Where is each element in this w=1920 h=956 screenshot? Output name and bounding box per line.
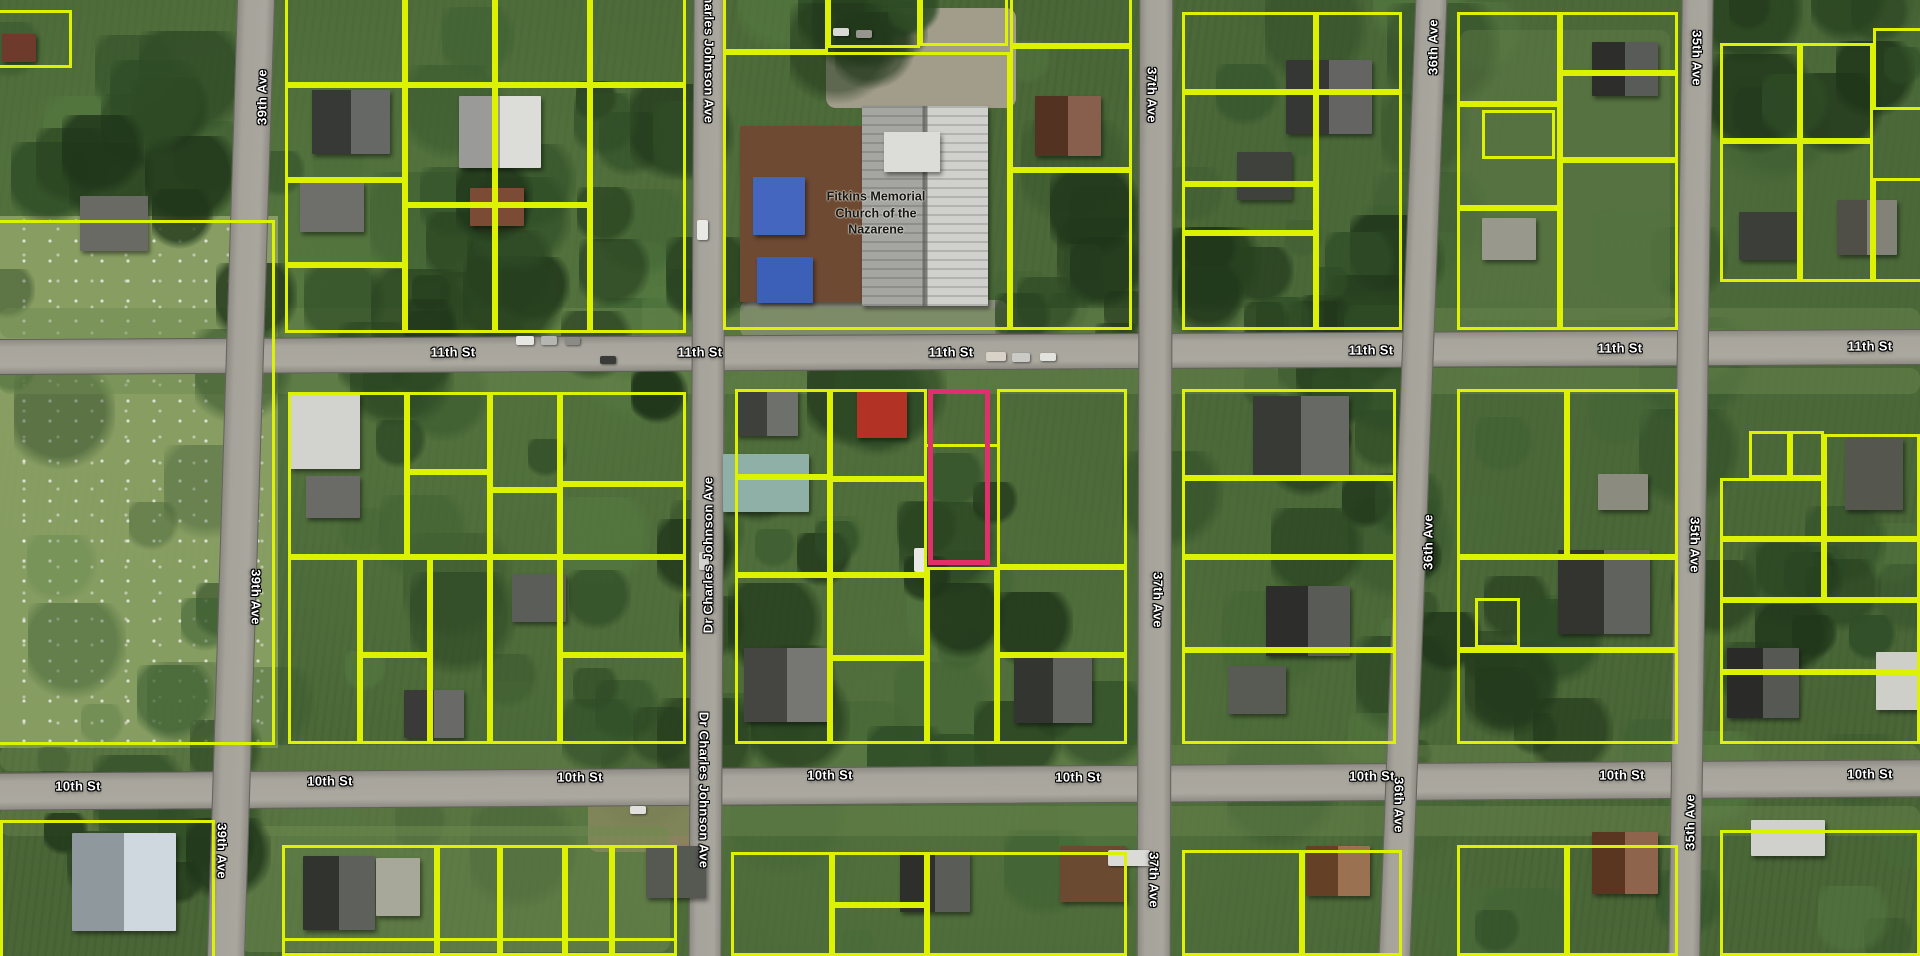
place-label-line: Nazarene <box>827 221 926 238</box>
street-label: 11th St <box>1349 342 1394 357</box>
parcel-outline[interactable] <box>0 220 275 745</box>
parcel-outline[interactable] <box>560 655 686 744</box>
parcel-outline[interactable] <box>1560 12 1678 73</box>
selected-parcel-outline[interactable] <box>928 389 990 565</box>
street-label: 37th Ave <box>1151 572 1166 628</box>
parcel-outline[interactable] <box>1720 539 1824 600</box>
parcel-outline[interactable] <box>360 655 430 744</box>
street-label: 37th Ave <box>1147 852 1162 908</box>
parcel-boundary-segment[interactable] <box>282 938 677 941</box>
parcel-outline[interactable] <box>1182 233 1316 330</box>
street-label: 10th St <box>307 773 353 788</box>
parcel-outline[interactable] <box>1457 650 1678 744</box>
street-label: 36th Ave <box>1392 777 1407 833</box>
parcel-outline[interactable] <box>830 658 927 744</box>
parcel-outline[interactable] <box>1010 46 1132 170</box>
vegetation-patch <box>36 128 114 206</box>
vegetation-patch <box>62 115 144 197</box>
parcel-outline[interactable] <box>405 85 495 205</box>
street-label: 10th St <box>807 767 853 782</box>
parcel-outline[interactable] <box>1720 141 1800 282</box>
parcel-outline[interactable] <box>832 905 927 956</box>
parcel-outline[interactable] <box>1720 43 1800 141</box>
parcel-outline[interactable] <box>560 392 686 484</box>
street-label: 11th St <box>431 344 476 359</box>
parcel-outline[interactable] <box>495 0 590 85</box>
parcel-outline[interactable] <box>997 655 1127 744</box>
parcel-outline[interactable] <box>405 205 495 333</box>
parcel-outline[interactable] <box>490 490 560 557</box>
parcel-outline[interactable] <box>1560 160 1678 330</box>
parcel-outline[interactable] <box>1182 650 1396 744</box>
street-label: Dr Charles Johnson Ave <box>701 477 716 634</box>
vehicle <box>630 806 646 814</box>
street-label: 11th St <box>929 344 974 359</box>
parcel-outline[interactable] <box>560 557 686 655</box>
vegetation-patch <box>75 117 131 173</box>
map-canvas[interactable]: Fitkins Memorial Church of the Nazarene … <box>0 0 1920 956</box>
parcel-outline[interactable] <box>0 10 72 68</box>
street-label: 35th Ave <box>1688 517 1703 573</box>
street-label: 37th Ave <box>1145 67 1160 123</box>
street-label: 36th Ave <box>1426 19 1441 75</box>
parcel-outline[interactable] <box>828 0 920 48</box>
parcel-outline[interactable] <box>490 557 560 744</box>
parcel-outline[interactable] <box>927 567 997 744</box>
parcel-outline[interactable] <box>920 0 1008 46</box>
parcel-outline[interactable] <box>1457 208 1560 330</box>
parcel-outline[interactable] <box>285 85 405 180</box>
vegetation-patch <box>95 35 177 117</box>
parcel-outline[interactable] <box>1567 389 1678 557</box>
parcel-outline[interactable] <box>490 392 560 490</box>
street-label: 10th St <box>55 778 101 793</box>
parcel-outline[interactable] <box>1824 434 1920 539</box>
vehicle <box>1040 353 1056 361</box>
vehicle <box>697 220 708 240</box>
parcel-outline[interactable] <box>1182 478 1396 557</box>
parcel-outline[interactable] <box>1182 92 1316 184</box>
parcel-outline[interactable] <box>285 0 405 85</box>
parcel-outline[interactable] <box>1567 845 1678 956</box>
road-37th-ave[interactable] <box>1137 0 1174 956</box>
parcel-outline[interactable] <box>288 392 407 557</box>
vegetation-patch <box>1729 0 1772 32</box>
parcel-outline[interactable] <box>285 180 405 265</box>
parcel-outline[interactable] <box>407 392 490 472</box>
place-label-line: Church of the <box>827 205 926 222</box>
parcel-outline[interactable] <box>1475 598 1520 648</box>
parcel-outline[interactable] <box>495 205 590 333</box>
vehicle <box>516 336 534 345</box>
vegetation-patch <box>131 77 209 155</box>
parcel-outline[interactable] <box>590 85 686 333</box>
parcel-outline[interactable] <box>1316 12 1402 92</box>
place-label-church: Fitkins Memorial Church of the Nazarene <box>827 188 926 238</box>
parcel-outline[interactable] <box>1010 0 1132 46</box>
street-label: 35th Ave <box>1683 794 1698 850</box>
parcel-outline[interactable] <box>731 852 832 956</box>
street-label: 11th St <box>1598 340 1643 355</box>
vegetation-patch <box>150 120 189 159</box>
parcel-outline[interactable] <box>495 85 590 205</box>
parcel-outline[interactable] <box>1182 557 1396 650</box>
parcel-outline[interactable] <box>288 557 360 744</box>
parcel-outline[interactable] <box>1560 73 1678 160</box>
parcel-outline[interactable] <box>735 575 830 744</box>
street-label: 10th St <box>1349 768 1395 783</box>
parcel-outline[interactable] <box>1720 672 1920 744</box>
vegetation-patch <box>101 94 180 173</box>
street-label: 10th St <box>557 769 603 784</box>
parcel-outline[interactable] <box>830 479 927 575</box>
street-label: 10th St <box>1599 767 1645 782</box>
parcel-outline[interactable] <box>1182 850 1302 956</box>
parcel-outline[interactable] <box>1873 28 1920 110</box>
street-label: 39th Ave <box>249 569 264 625</box>
parcel-outline[interactable] <box>1482 110 1555 159</box>
parcel-outline[interactable] <box>830 575 927 658</box>
parcel-outline[interactable] <box>1720 478 1824 539</box>
vegetation-patch <box>43 96 157 210</box>
street-label: 39th Ave <box>255 69 270 125</box>
parcel-outline[interactable] <box>1302 850 1402 956</box>
vehicle <box>600 356 616 364</box>
parcel-outline[interactable] <box>560 484 686 557</box>
parcel-outline[interactable] <box>1873 178 1920 282</box>
parcel-outline[interactable] <box>360 557 430 655</box>
parcel-outline[interactable] <box>1800 43 1873 141</box>
street-label: 11th St <box>678 344 723 359</box>
parcel-outline[interactable] <box>832 852 927 905</box>
vegetation-patch <box>110 60 203 153</box>
street-label: 10th St <box>1847 766 1893 781</box>
street-label: 35th Ave <box>1690 30 1705 86</box>
parcel-outline[interactable] <box>430 557 490 744</box>
parcel-outline[interactable] <box>1800 141 1873 282</box>
vehicle <box>541 336 557 345</box>
vegetation-patch <box>139 31 248 140</box>
street-label: 36th Ave <box>1421 514 1436 570</box>
parcel-outline[interactable] <box>735 389 830 477</box>
place-label-line: Fitkins Memorial <box>827 188 926 205</box>
parcel-outline[interactable] <box>1182 389 1396 478</box>
parcel-outline[interactable] <box>1457 389 1567 557</box>
vehicle <box>986 352 1006 361</box>
street-label: Dr Charles Johnson Ave <box>697 712 712 869</box>
parcel-outline[interactable] <box>1182 12 1316 92</box>
parcel-outline[interactable] <box>0 820 215 956</box>
parcel-outline[interactable] <box>405 0 495 85</box>
street-label: 39th Ave <box>215 823 230 879</box>
parcel-outline[interactable] <box>407 472 490 557</box>
parcel-outline[interactable] <box>997 389 1127 567</box>
street-label: 10th St <box>1055 769 1101 784</box>
parcel-outline[interactable] <box>285 265 405 333</box>
street-label: 11th St <box>1848 338 1893 353</box>
parcel-outline[interactable] <box>590 0 686 85</box>
parcel-outline[interactable] <box>723 0 828 52</box>
parcel-outline[interactable] <box>1010 170 1132 330</box>
vehicle <box>565 337 580 345</box>
parcel-outline[interactable] <box>1720 830 1920 956</box>
parcel-outline[interactable] <box>1720 600 1920 672</box>
parcel-outline[interactable] <box>1824 539 1920 600</box>
parcel-outline[interactable] <box>997 567 1127 655</box>
parcel-outline[interactable] <box>927 852 1127 956</box>
parcel-outline[interactable] <box>1457 845 1567 956</box>
parcel-outline[interactable] <box>1316 92 1402 330</box>
parcel-outline[interactable] <box>1457 12 1560 104</box>
parcel-outline[interactable] <box>1790 431 1824 478</box>
parcel-outline[interactable] <box>1182 184 1316 233</box>
vehicle <box>1012 353 1030 362</box>
parcel-outline[interactable] <box>1749 431 1790 478</box>
parcel-outline[interactable] <box>830 389 927 479</box>
street-label: Dr Charles Johnson Ave <box>702 0 717 123</box>
vegetation-patch <box>145 136 238 229</box>
parcel-outline[interactable] <box>735 477 830 575</box>
